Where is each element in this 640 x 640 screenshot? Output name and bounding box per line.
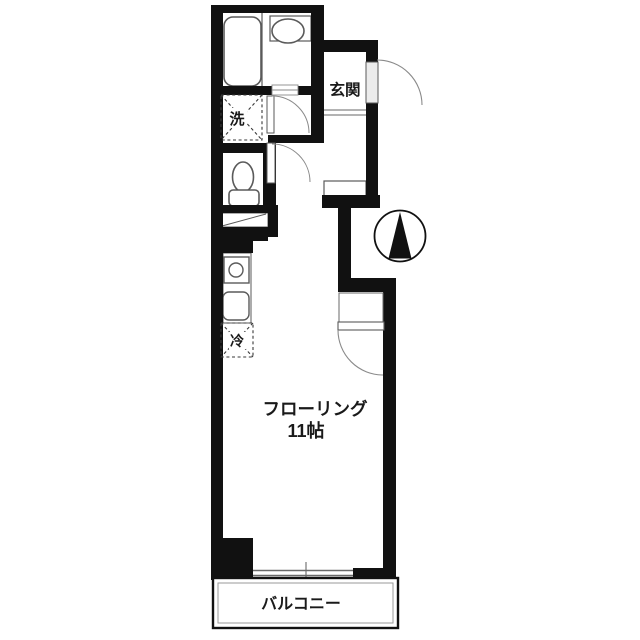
- floor-plan-canvas: 玄関 洗 冷 フローリング 11帖 バルコニー: [0, 0, 640, 640]
- wall-hall-top: [268, 135, 318, 143]
- wall-genkan-right-upper: [366, 40, 378, 62]
- wall-block-upper: [211, 227, 268, 241]
- balcony-label: バルコニー: [261, 595, 341, 613]
- bathroom-door: [272, 85, 298, 95]
- pipe-space-box: [220, 213, 268, 227]
- shoe-cabinet: [324, 181, 366, 196]
- stove-burner: [229, 263, 243, 277]
- wall-top: [211, 5, 322, 13]
- north-arrow-icon: [375, 211, 426, 262]
- kitchen-unit: [223, 253, 251, 323]
- fridge-label: 冷: [230, 333, 244, 349]
- bathtub: [224, 17, 261, 86]
- wall-pipe-right: [268, 205, 278, 237]
- wall-bath-bottom-left: [211, 86, 272, 95]
- toilet-tank: [229, 190, 259, 206]
- wall-corridor-bottom: [322, 195, 380, 208]
- closet-recess: [339, 293, 383, 322]
- floor-plan-page: 玄関 洗 冷 フローリング 11帖 バルコニー: [0, 0, 640, 640]
- kitchen-sink: [223, 292, 249, 320]
- washbasin-bowl: [272, 19, 304, 43]
- toilet-bowl: [233, 162, 254, 192]
- wall-bath-bottom-right: [298, 86, 324, 95]
- genkan-label: 玄関: [329, 80, 360, 99]
- main-room-label-line2: 11帖: [287, 420, 324, 441]
- wall-right: [383, 292, 396, 578]
- wall-genkan-right-lower: [366, 103, 378, 208]
- wall-bath-genkan: [311, 5, 324, 143]
- closet-door-leaf: [338, 322, 384, 330]
- wall-toilet-bottom: [211, 205, 276, 213]
- entry-door-leaf: [366, 62, 378, 103]
- wall-notch-bottom: [338, 278, 396, 292]
- laundry-label: 洗: [229, 110, 244, 128]
- wall-notch-left: [338, 208, 351, 285]
- washroom-door-leaf: [267, 96, 274, 133]
- wall-bottom-right: [353, 568, 396, 578]
- wall-block-lower: [211, 241, 253, 253]
- toilet-door-leaf: [267, 143, 275, 183]
- main-room-label-line1: フローリング: [263, 399, 368, 419]
- wall-bottom-left-block: [211, 538, 253, 578]
